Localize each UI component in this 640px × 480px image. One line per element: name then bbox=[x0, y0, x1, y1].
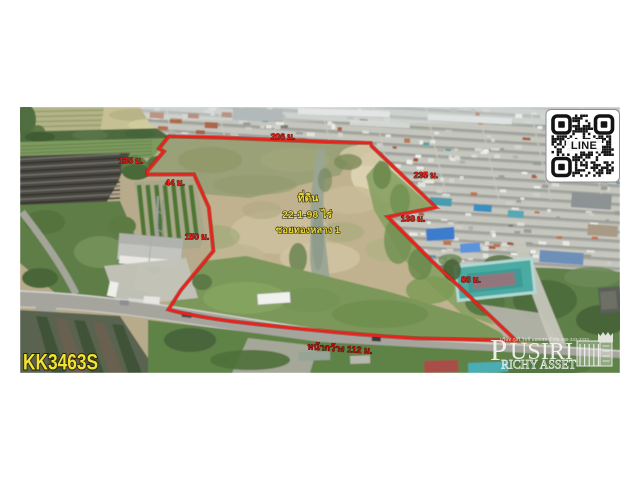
svg-text:44 ม.: 44 ม. bbox=[165, 178, 185, 188]
svg-text:88 ม.: 88 ม. bbox=[461, 275, 481, 285]
svg-text:235 ม.: 235 ม. bbox=[414, 170, 439, 180]
svg-text:22-1-98 ไร่: 22-1-98 ไร่ bbox=[282, 208, 332, 221]
svg-text:ซอยทองหลาง 1: ซอยทองหลาง 1 bbox=[276, 225, 341, 236]
svg-text:150 ม.: 150 ม. bbox=[185, 232, 210, 242]
svg-text:135 ม.: 135 ม. bbox=[119, 156, 144, 166]
svg-text:206 ม.: 206 ม. bbox=[271, 132, 296, 142]
svg-text:LINE: LINE bbox=[571, 140, 597, 152]
svg-text:138 ม.: 138 ม. bbox=[401, 214, 426, 224]
svg-text:ที่ดิน: ที่ดิน bbox=[297, 190, 319, 205]
svg-text:RICHY ASSET: RICHY ASSET bbox=[501, 357, 576, 372]
svg-text:บริษัท ภูสิริ ริชชี่ แอสเซท จำ: บริษัท ภูสิริ ริชชี่ แอสเซท จำกัด 085-33… bbox=[500, 336, 589, 343]
svg-text:KK3463S: KK3463S bbox=[23, 350, 98, 375]
